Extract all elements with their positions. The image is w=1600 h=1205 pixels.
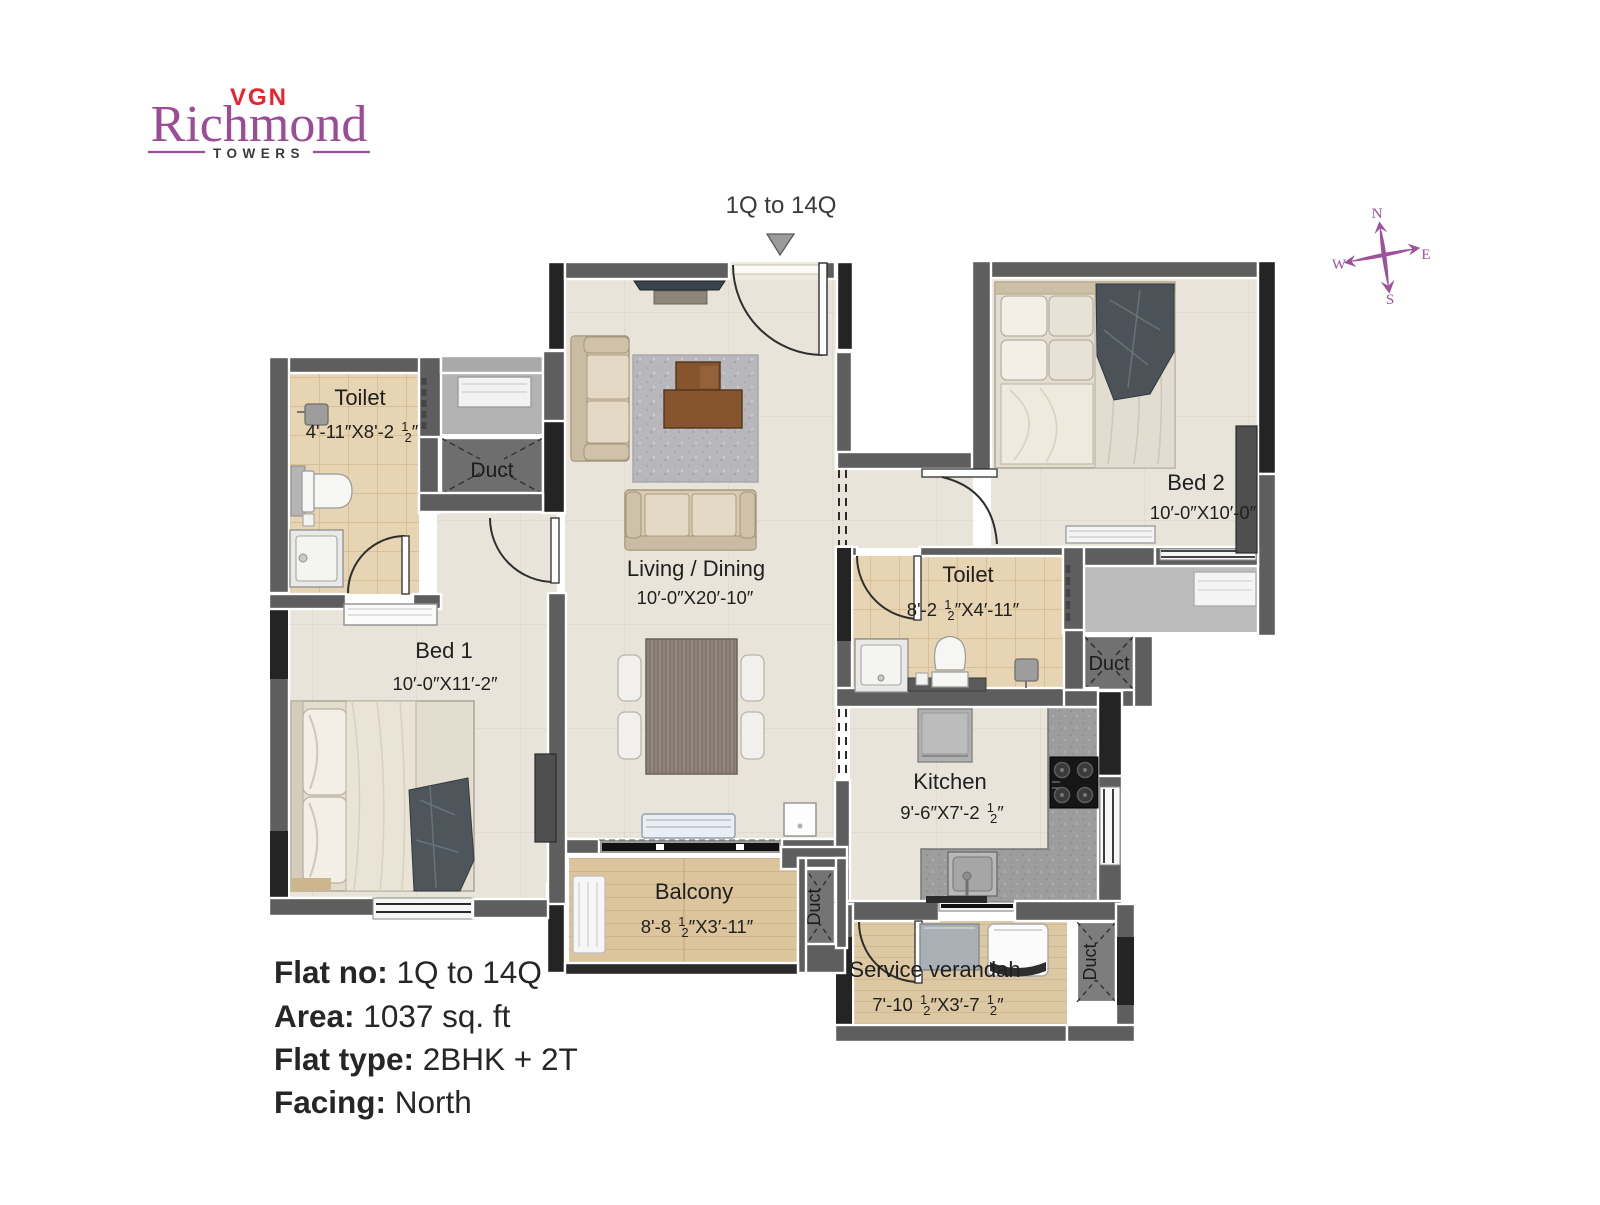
svg-text:W: W (1332, 257, 1347, 273)
svg-text:TOWERS: TOWERS (213, 146, 305, 161)
svg-text:10′-0″X10′-0″: 10′-0″X10′-0″ (1150, 502, 1257, 523)
svg-text:Flat no: 1Q to 14Q: Flat no: 1Q to 14Q (274, 954, 542, 990)
svg-text:Richmond: Richmond (151, 96, 368, 153)
svg-text:Toilet: Toilet (334, 385, 385, 410)
svg-text:Flat type: 2BHK + 2T: Flat type: 2BHK + 2T (274, 1041, 578, 1077)
svg-text:Duct: Duct (1088, 653, 1130, 675)
svg-text:Bed 1: Bed 1 (415, 638, 473, 663)
svg-text:10′-0″X20′-10″: 10′-0″X20′-10″ (637, 587, 754, 608)
svg-text:Duct: Duct (1080, 943, 1100, 980)
svg-text:Area: 1037 sq. ft: Area: 1037 sq. ft (274, 998, 511, 1034)
svg-text:S: S (1386, 292, 1394, 308)
svg-text:Facing: North: Facing: North (274, 1084, 472, 1120)
svg-text:10′-0″X11′-2″: 10′-0″X11′-2″ (392, 673, 498, 694)
svg-text:N: N (1372, 206, 1383, 222)
svg-text:7'-10 12″X3′-7 12″: 7'-10 12″X3′-7 12″ (872, 992, 1004, 1018)
svg-text:E: E (1421, 247, 1430, 263)
svg-text:Kitchen: Kitchen (913, 769, 986, 794)
svg-text:8'-2 12″X4′-11″: 8'-2 12″X4′-11″ (907, 597, 1020, 623)
svg-text:1Q to 14Q: 1Q to 14Q (726, 192, 837, 219)
svg-text:Living / Dining: Living / Dining (627, 556, 765, 581)
svg-text:Duct: Duct (470, 459, 513, 482)
svg-text:Bed 2: Bed 2 (1167, 470, 1225, 495)
svg-text:Service verandah: Service verandah (849, 957, 1020, 982)
svg-text:Toilet: Toilet (942, 562, 993, 587)
svg-text:8'-8 12″X3′-11″: 8'-8 12″X3′-11″ (641, 914, 754, 940)
svg-text:Balcony: Balcony (655, 879, 733, 904)
